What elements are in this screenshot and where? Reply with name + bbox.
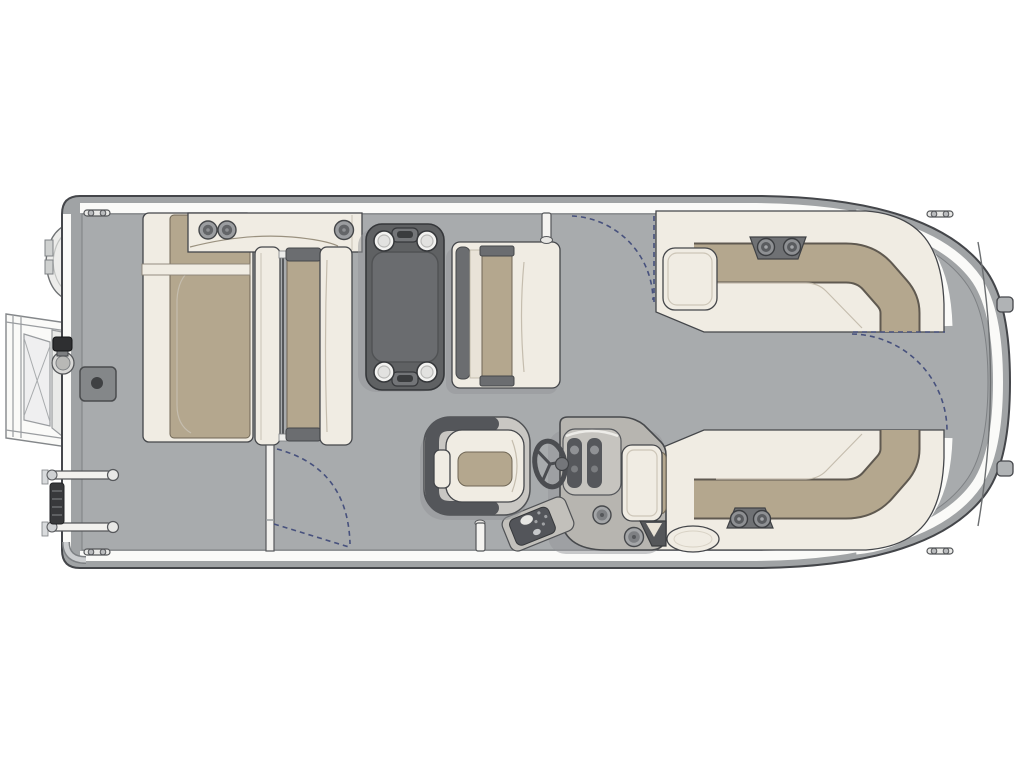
cleat-stern-port: [84, 210, 110, 216]
chaise-seam-band: [142, 264, 250, 275]
starboard-gate-open-door: [266, 445, 274, 551]
cupholder: [784, 239, 801, 256]
cupholder: [218, 221, 236, 239]
wheel-hub: [556, 458, 569, 471]
bench-backrest-left: [255, 247, 280, 445]
pontoon-floorplan-stage: [0, 0, 1024, 768]
bow-tab-upper: [997, 297, 1013, 312]
cupholder: [199, 221, 217, 239]
chair-side-pad: [434, 450, 450, 488]
cleat-stern-starboard: [84, 549, 110, 555]
cleat-bow-starboard: [927, 548, 953, 554]
fuel-filler: [52, 337, 74, 374]
dinette-bench: [446, 242, 560, 394]
table-inner-panel: [372, 252, 438, 362]
helm-gate-post: [476, 523, 485, 551]
bench-cap-bottom: [286, 428, 321, 441]
cupholder: [335, 221, 354, 240]
bench-backrest-right: [320, 247, 352, 445]
bow-tab-lower: [997, 461, 1013, 476]
bench-cushion: [287, 259, 320, 429]
captain-chair: [420, 417, 530, 520]
ladder-rail-top: [50, 471, 112, 479]
starboard-bow-lounge: [656, 211, 944, 332]
port-gate-post: [542, 213, 551, 239]
dinette-front-rail: [456, 247, 470, 379]
speaker: [625, 528, 644, 547]
floorplan-svg: [0, 0, 1024, 768]
stern-lounge-end-pillow: [667, 526, 719, 552]
starboard-stern-lounge: [656, 430, 944, 552]
cupholder: [731, 511, 748, 528]
cupholder: [754, 511, 771, 528]
back-to-back-bench: [255, 247, 352, 445]
ski-tow-socket: [91, 377, 103, 389]
table-group: [358, 224, 444, 392]
cupholder: [758, 239, 775, 256]
chair-cushion: [458, 452, 512, 486]
ladder-folded-steps: [50, 483, 64, 524]
port-bow-lounge-group: [142, 213, 362, 445]
bow-lounge-armrest: [663, 248, 717, 310]
dinette-cushion: [482, 252, 512, 380]
bench-cap-top: [286, 248, 321, 261]
speaker: [593, 506, 611, 524]
cleat-bow-port: [927, 211, 953, 217]
